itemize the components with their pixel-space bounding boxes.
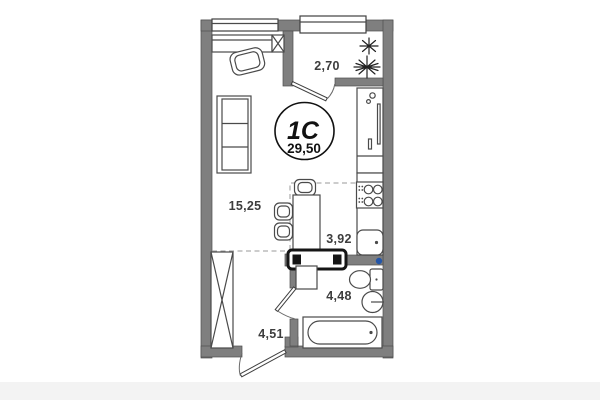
dining-table bbox=[293, 195, 320, 253]
wall-left bbox=[201, 20, 212, 358]
fridge bbox=[357, 88, 383, 173]
wall-bath-left-bottom bbox=[290, 319, 298, 346]
wardrobe bbox=[211, 252, 233, 348]
window-balcony bbox=[300, 16, 366, 33]
footer-band bbox=[0, 382, 600, 400]
plant-icon bbox=[354, 56, 380, 78]
washing-machine bbox=[296, 266, 317, 289]
kitchen-sink bbox=[357, 230, 383, 255]
floor-plan: 1С 29,50 15,25 2,70 3,92 4,48 4,51 bbox=[0, 0, 600, 400]
fridge-handle-icon bbox=[378, 104, 381, 144]
drain-icon bbox=[369, 331, 372, 334]
wall-right bbox=[383, 20, 393, 358]
faucet-icon bbox=[375, 241, 378, 244]
unit-label-circle: 1С 29,50 bbox=[275, 103, 334, 160]
entrance-door bbox=[239, 350, 286, 377]
plumbing-riser-dot bbox=[376, 258, 382, 264]
bathroom-door bbox=[275, 287, 296, 319]
area-label-living: 15,25 bbox=[229, 199, 262, 213]
wall-balcony-bottom bbox=[335, 78, 383, 86]
window-living bbox=[212, 19, 278, 31]
stove bbox=[357, 182, 384, 208]
sofa bbox=[217, 96, 251, 173]
dining-chair-top bbox=[295, 180, 316, 196]
balcony-door bbox=[291, 82, 335, 101]
area-label-kitchen: 3,92 bbox=[326, 232, 352, 246]
dining-chair-left-1 bbox=[275, 203, 293, 220]
toilet bbox=[350, 269, 384, 290]
area-label-balcony: 2,70 bbox=[314, 59, 340, 73]
desk bbox=[212, 35, 272, 52]
desk-cabinet bbox=[272, 35, 284, 52]
area-label-hallway: 4,51 bbox=[258, 327, 284, 341]
bathtub bbox=[303, 317, 382, 348]
dining-chair-left-2 bbox=[275, 223, 293, 240]
unit-total-area: 29,50 bbox=[287, 141, 321, 156]
plant-icon bbox=[360, 38, 378, 54]
washbasin bbox=[362, 292, 384, 313]
area-label-bathroom: 4,48 bbox=[326, 289, 352, 303]
